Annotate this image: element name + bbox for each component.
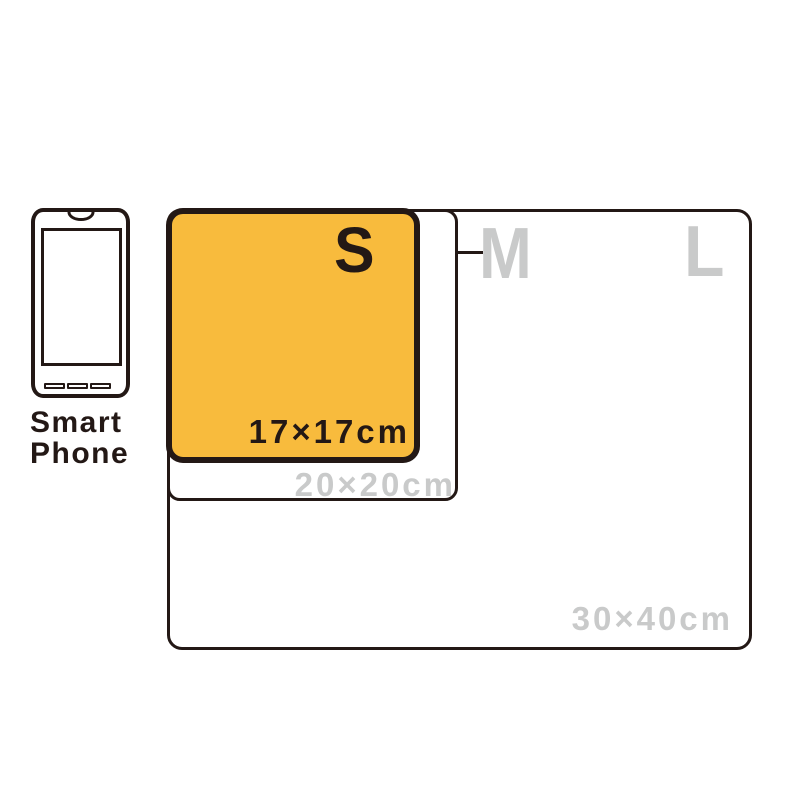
- phone-button-row: [44, 383, 111, 389]
- size-l-dimensions-label: 30×40cm: [572, 602, 733, 635]
- size-m-letter: M: [479, 218, 532, 290]
- size-comparison-diagram: M L 20×20cm 30×40cm S 17×17cm Smart Phon…: [0, 0, 800, 800]
- size-m-dimensions-label: 20×20cm: [295, 468, 456, 501]
- phone-button-icon: [44, 383, 65, 389]
- size-l-letter: L: [684, 216, 724, 288]
- smartphone-caption-line1: Smart: [30, 407, 129, 438]
- size-s-letter: S: [334, 218, 375, 282]
- phone-button-icon: [90, 383, 111, 389]
- size-s-dimensions-label: 17×17cm: [249, 415, 410, 448]
- phone-speaker-notch-icon: [67, 212, 94, 221]
- smartphone-caption: Smart Phone: [30, 407, 129, 469]
- smartphone-illustration: [31, 208, 130, 398]
- smartphone-caption-line2: Phone: [30, 438, 129, 469]
- phone-button-icon: [67, 383, 88, 389]
- phone-screen: [41, 228, 122, 366]
